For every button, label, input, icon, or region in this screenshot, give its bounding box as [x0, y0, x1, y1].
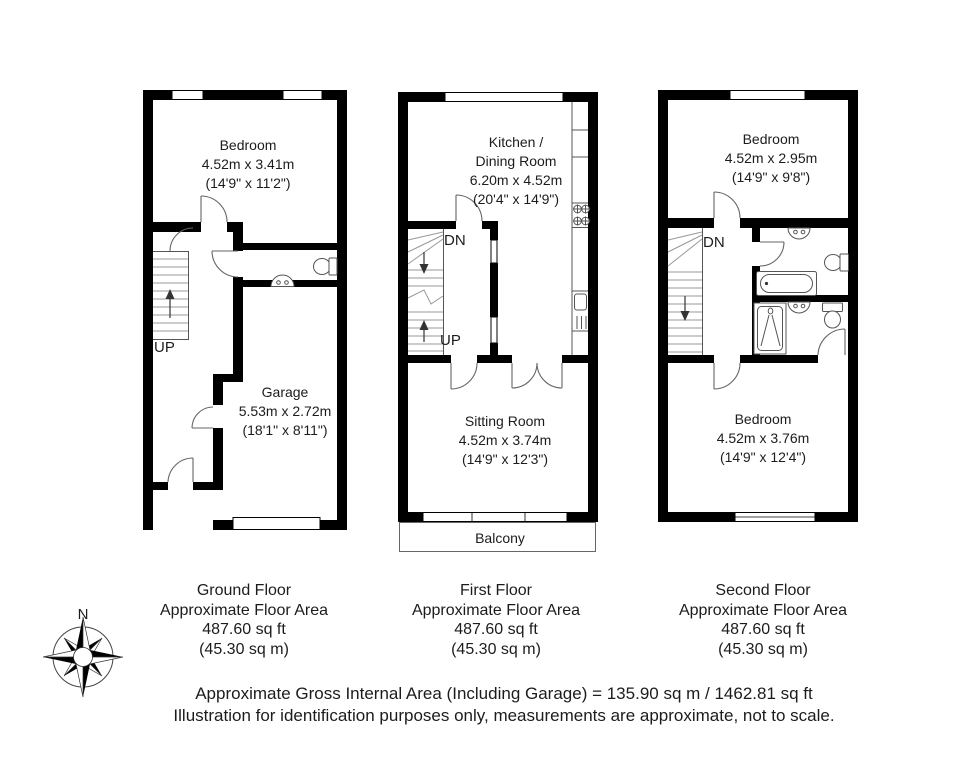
room-name: Garage [210, 383, 360, 402]
room-dims-imperial: (14'9" x 12'4") [688, 448, 838, 467]
window [730, 91, 805, 100]
area-sqm: (45.30 sq m) [386, 640, 606, 660]
room-label-ground-bedroom: Bedroom 4.52m x 3.41m (14'9" x 11'2") [173, 136, 323, 193]
glazed-panel [491, 240, 497, 263]
stairs-up-label: UP [440, 333, 480, 349]
room-dims-metric: 4.52m x 3.76m [688, 429, 838, 448]
floorplan-page: Bedroom 4.52m x 3.41m (14'9" x 11'2") Ga… [0, 0, 980, 772]
area-sqm: (45.30 sq m) [134, 640, 354, 660]
stairs-dn-label: DN [703, 235, 743, 251]
sink-icon [271, 275, 294, 287]
door-arc [451, 363, 477, 389]
footer-disclaimer: Approximate Gross Internal Area (Includi… [24, 683, 980, 726]
room-dims-metric: 4.52m x 2.95m [696, 149, 846, 168]
shower-icon [754, 303, 786, 354]
kitchen-sink-icon [575, 294, 587, 329]
gross-internal-area: Approximate Gross Internal Area (Includi… [24, 683, 980, 705]
door-arc [714, 363, 740, 389]
room-label-kitchen-dining: Kitchen / Dining Room 6.20m x 4.52m (20'… [441, 133, 591, 209]
room-dims-metric: 5.53m x 2.72m [210, 402, 360, 421]
room-name: Sitting Room [430, 412, 580, 431]
shower-room-toilet-icon [823, 303, 843, 328]
stairs-dn-label: DN [444, 233, 484, 249]
door-arc [212, 251, 238, 277]
floor-name: Ground Floor [134, 581, 354, 601]
room-name: Bedroom [696, 130, 846, 149]
floor-name: First Floor [386, 581, 606, 601]
toilet-icon [314, 258, 338, 275]
window [283, 91, 322, 100]
area-sqft: 487.60 sq ft [653, 620, 873, 640]
front-door-arc [168, 458, 193, 482]
balcony-label: Balcony [440, 530, 560, 546]
compass-north-label: N [63, 606, 103, 623]
room-dims-imperial: (14'9" x 9'8") [696, 168, 846, 187]
room-name: Kitchen / [441, 133, 591, 152]
room-dims-imperial: (18'1" x 8'11") [210, 421, 360, 440]
disclaimer-text: Illustration for identification purposes… [24, 705, 980, 727]
room-dims-imperial: (14'9" x 11'2") [173, 174, 323, 193]
area-caption: Approximate Floor Area [134, 601, 354, 621]
double-door-arc [512, 363, 562, 388]
area-sqft: 487.60 sq ft [134, 620, 354, 640]
stairs-up-label: UP [154, 340, 194, 356]
area-summary-second: Second Floor Approximate Floor Area 487.… [653, 581, 873, 659]
staircase [408, 229, 444, 355]
area-summary-ground: Ground Floor Approximate Floor Area 487.… [134, 581, 354, 659]
staircase [153, 251, 189, 340]
window [445, 93, 563, 102]
room-label-garage: Garage 5.53m x 2.72m (18'1" x 8'11") [210, 383, 360, 440]
door-arc [818, 329, 845, 355]
room-dims-imperial: (14'9" x 12'3") [430, 450, 580, 469]
staircase [668, 228, 703, 355]
room-dims-metric: 4.52m x 3.41m [173, 155, 323, 174]
room-label-second-bedroom-top: Bedroom 4.52m x 2.95m (14'9" x 9'8") [696, 130, 846, 187]
room-label-sitting-room: Sitting Room 4.52m x 3.74m (14'9" x 12'3… [430, 412, 580, 469]
window [172, 91, 203, 100]
garage-door [233, 518, 320, 530]
area-caption: Approximate Floor Area [386, 601, 606, 621]
bathroom-sink-icon [788, 228, 810, 239]
window [423, 513, 567, 522]
room-dims-metric: 4.52m x 3.74m [430, 431, 580, 450]
room-name: Dining Room [441, 152, 591, 171]
area-caption: Approximate Floor Area [653, 601, 873, 621]
shower-room-sink-icon [788, 302, 810, 313]
toilet-icon [825, 254, 849, 271]
area-summary-first: First Floor Approximate Floor Area 487.6… [386, 581, 606, 659]
bathtub-icon [757, 272, 817, 296]
door-arc [714, 192, 740, 218]
area-sqm: (45.30 sq m) [653, 640, 873, 660]
glazed-panel [491, 317, 497, 343]
room-dims-imperial: (20'4" x 14'9") [441, 190, 591, 209]
room-label-second-bedroom-bottom: Bedroom 4.52m x 3.76m (14'9" x 12'4") [688, 410, 838, 467]
floor-name: Second Floor [653, 581, 873, 601]
door-arc [201, 196, 227, 222]
area-sqft: 487.60 sq ft [386, 620, 606, 640]
door-arc [760, 242, 784, 266]
room-name: Bedroom [688, 410, 838, 429]
room-name: Bedroom [173, 136, 323, 155]
room-dims-metric: 6.20m x 4.52m [441, 171, 591, 190]
